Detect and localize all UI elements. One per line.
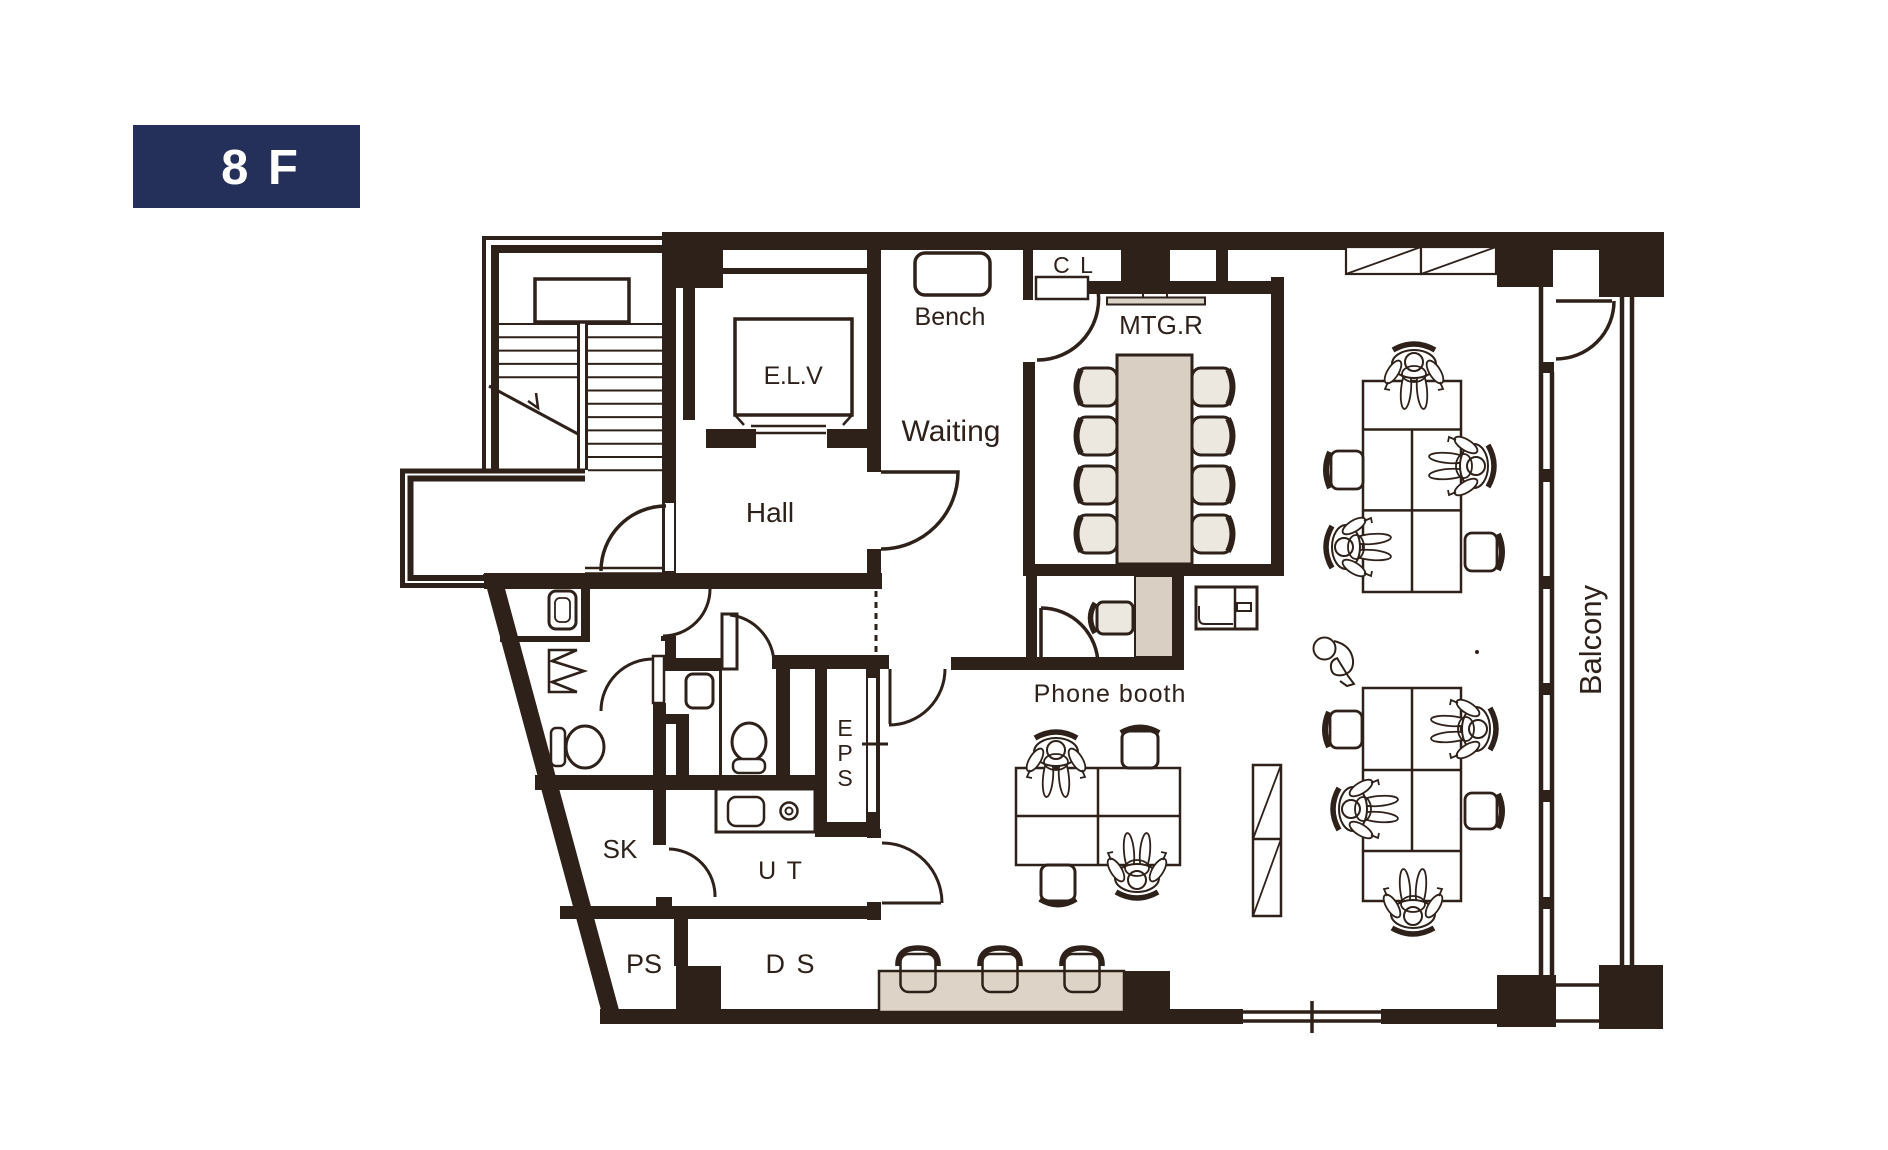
svg-text:E.L.V: E.L.V (764, 362, 823, 390)
svg-text:SK: SK (603, 834, 638, 864)
svg-text:E: E (837, 715, 852, 741)
svg-text:Bench: Bench (915, 303, 986, 331)
svg-text:MTG.R: MTG.R (1119, 310, 1203, 340)
svg-text:Phone booth: Phone booth (1034, 680, 1187, 708)
svg-text:D S: D S (765, 949, 816, 979)
svg-text:P: P (837, 740, 852, 766)
svg-text:Balcony: Balcony (1573, 584, 1608, 695)
svg-text:U T: U T (758, 857, 804, 885)
svg-text:C L: C L (1053, 252, 1095, 278)
svg-text:Hall: Hall (746, 497, 794, 528)
svg-text:PS: PS (626, 949, 662, 979)
svg-text:S: S (837, 765, 852, 791)
svg-text:Waiting: Waiting (902, 415, 1001, 448)
svg-text:8 F: 8 F (221, 141, 301, 195)
